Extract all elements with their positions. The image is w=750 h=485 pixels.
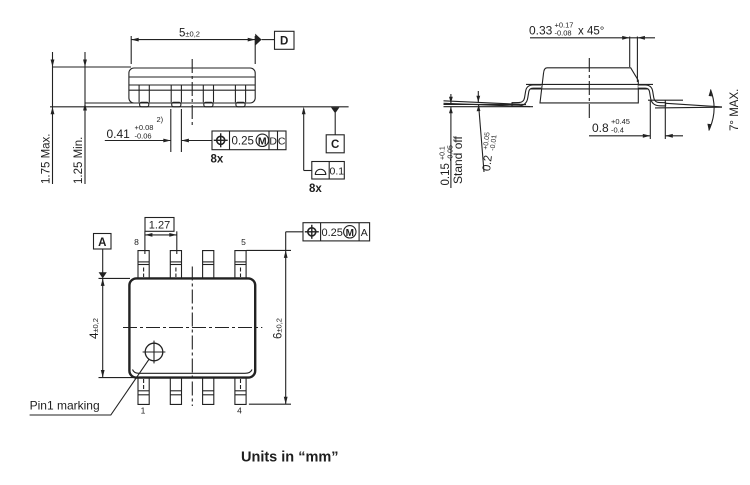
- svg-text:0.2: 0.2: [481, 155, 495, 172]
- svg-text:M: M: [258, 135, 267, 147]
- svg-text:Pin1 marking: Pin1 marking: [30, 399, 100, 413]
- svg-text:8x: 8x: [309, 183, 322, 195]
- svg-text:2): 2): [157, 115, 164, 124]
- svg-text:8x: 8x: [211, 154, 224, 166]
- svg-text:+0.1: +0.1: [440, 146, 447, 160]
- svg-text:5: 5: [241, 237, 246, 247]
- svg-text:0.1: 0.1: [329, 165, 344, 177]
- svg-text:-0.06: -0.06: [135, 132, 152, 141]
- svg-text:-0.08: -0.08: [555, 29, 572, 38]
- svg-text:C: C: [278, 136, 286, 148]
- svg-text:D: D: [280, 36, 288, 48]
- svg-text:4: 4: [237, 406, 242, 416]
- svg-text:Stand off: Stand off: [451, 136, 465, 184]
- svg-text:A: A: [98, 237, 106, 249]
- svg-text:A: A: [361, 227, 368, 239]
- svg-text:0.8: 0.8: [592, 121, 609, 135]
- svg-text:1.75 Max.: 1.75 Max.: [41, 134, 53, 185]
- svg-text:0.25: 0.25: [232, 136, 254, 148]
- svg-text:5±0,2: 5±0,2: [179, 28, 200, 40]
- svg-text:C: C: [331, 139, 339, 151]
- svg-text:1.27: 1.27: [149, 220, 170, 232]
- svg-text:7° MAX.: 7° MAX.: [729, 89, 741, 131]
- svg-text:4±0,2: 4±0,2: [89, 318, 101, 339]
- svg-text:M: M: [346, 228, 354, 239]
- svg-text:0.33: 0.33: [529, 24, 553, 38]
- svg-text:x 45°: x 45°: [578, 26, 604, 38]
- svg-text:8: 8: [134, 237, 139, 247]
- svg-text:0.41: 0.41: [107, 127, 131, 141]
- svg-text:Units in “mm”: Units in “mm”: [241, 450, 338, 466]
- svg-text:0.25: 0.25: [322, 227, 343, 239]
- svg-text:1.25 Min.: 1.25 Min.: [73, 137, 85, 184]
- svg-text:D: D: [269, 136, 277, 148]
- svg-text:6±0,2: 6±0,2: [273, 318, 285, 339]
- svg-text:-0.4: -0.4: [611, 126, 624, 135]
- svg-text:-0.01: -0.01: [490, 134, 499, 151]
- svg-text:1: 1: [141, 406, 146, 416]
